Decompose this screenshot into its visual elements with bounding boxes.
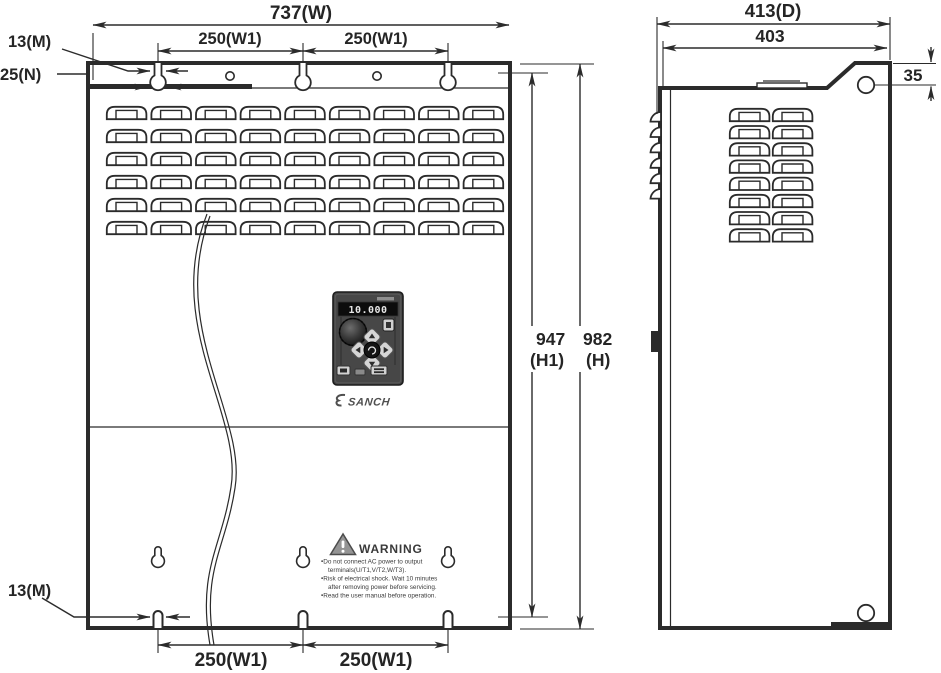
- dimension-drawing-page: 10.000: [0, 0, 941, 673]
- keypad: 10.000: [333, 292, 403, 385]
- dim-hole-spacing-bottom-right: 250(W1): [340, 650, 413, 671]
- dim-height-total-value: 982: [583, 329, 612, 349]
- warning-line: •Do not connect AC power to output: [321, 559, 423, 566]
- front-view: 10.000: [88, 63, 510, 645]
- keypad-func-button: [371, 366, 387, 375]
- dim-height-total-label: (H): [586, 350, 610, 370]
- warning-line: terminals(U/T1,V/T2,W/T3).: [328, 567, 406, 574]
- dimension-drawing: 10.000: [0, 0, 941, 673]
- warning-line: •Risk of electrical shock. Wait 10 minut…: [321, 576, 437, 583]
- dim-height-body-value: 947: [536, 329, 565, 349]
- brand-name: SANCH: [347, 397, 391, 409]
- dim-height-body-label: (H1): [530, 350, 564, 370]
- keypad-display-value: 10.000: [348, 305, 387, 316]
- top-mount-hole-icon: [858, 77, 874, 93]
- warning-line: •Read the user manual before operation.: [321, 593, 436, 600]
- top-handle-detail: [757, 83, 807, 88]
- dim-bracket-overlap: 25(N): [0, 66, 41, 84]
- dim-width-total: 737(W): [270, 3, 332, 24]
- pilot-hole-icon: [226, 72, 234, 80]
- keypad-stop-button: [355, 369, 365, 375]
- enter-button: [364, 342, 380, 358]
- side-view: [651, 63, 891, 628]
- dim-depth-total: 413(D): [745, 0, 802, 21]
- side-latch-tab: [651, 331, 660, 352]
- bottom-mount-hole-icon: [858, 605, 874, 621]
- dim-bracket-hole-offset: 35: [904, 66, 923, 85]
- dim-hole-spacing-top-left: 250(W1): [198, 30, 261, 48]
- pilot-hole-icon: [373, 72, 381, 80]
- warning-line: after removing power before servicing.: [328, 584, 437, 591]
- dim-depth-body: 403: [755, 26, 784, 46]
- dim-hole-width-top: 13(M): [8, 33, 51, 51]
- warning-title: WARNING: [359, 542, 423, 556]
- dim-hole-spacing-bottom-left: 250(W1): [195, 650, 268, 671]
- dim-hole-spacing-top-right: 250(W1): [344, 30, 407, 48]
- dim-hole-width-bottom: 13(M): [8, 582, 51, 600]
- front-enclosure-outline: [88, 63, 510, 628]
- keypad-model-label: [377, 297, 394, 300]
